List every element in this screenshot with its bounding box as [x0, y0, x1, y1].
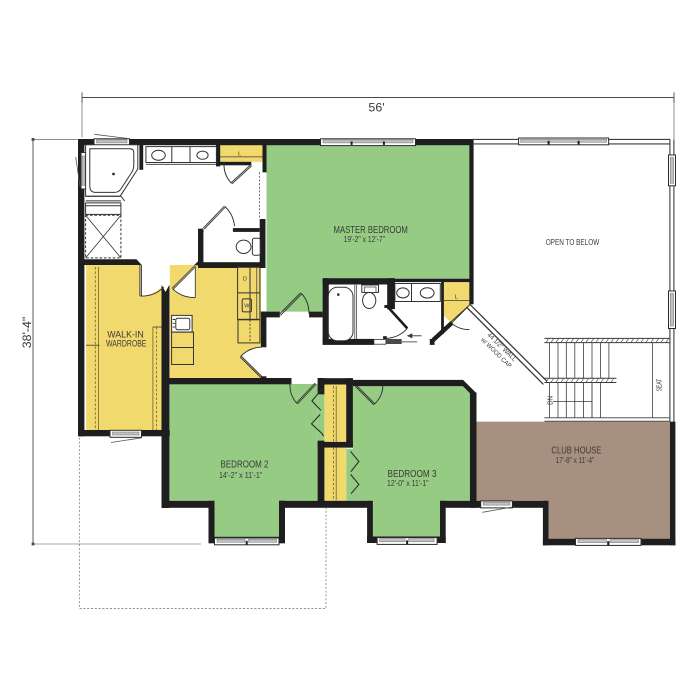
- svg-text:12'-0" x 11'-1": 12'-0" x 11'-1": [387, 479, 429, 488]
- svg-text:W: W: [244, 304, 250, 310]
- svg-text:BEDROOM 2: BEDROOM 2: [221, 460, 269, 471]
- svg-text:38'-4": 38'-4": [20, 317, 34, 349]
- svg-text:D: D: [243, 276, 247, 282]
- svg-text:14'-2" x 11'-1": 14'-2" x 11'-1": [219, 471, 263, 480]
- svg-text:WARDROBE: WARDROBE: [106, 339, 146, 349]
- svg-text:SEAT: SEAT: [656, 378, 663, 391]
- svg-text:17'-8" x 11'-4": 17'-8" x 11'-4": [556, 456, 595, 465]
- svg-text:CLUB HOUSE: CLUB HOUSE: [551, 446, 601, 457]
- svg-text:DN: DN: [548, 396, 555, 405]
- svg-text:19'-2" x 12'-7": 19'-2" x 12'-7": [344, 235, 386, 244]
- svg-text:OPEN TO BELOW: OPEN TO BELOW: [546, 237, 600, 247]
- svg-text:56': 56': [368, 101, 384, 115]
